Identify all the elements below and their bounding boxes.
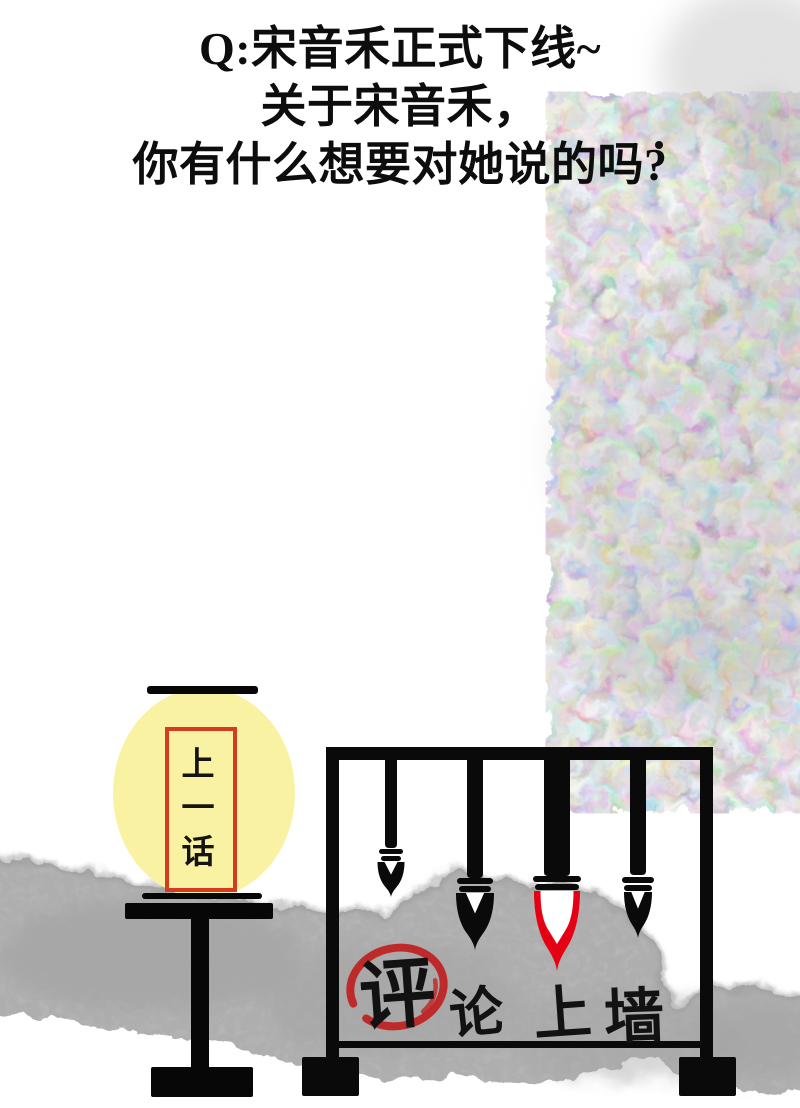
brush-icon-1 <box>378 760 405 897</box>
qa-header: Q:宋音禾正式下线~ 关于宋音禾， 你有什么想要对她说的吗? <box>0 20 800 194</box>
comment-wall-char-qiang: 墙 <box>603 967 666 1056</box>
rack-top-bar <box>326 747 713 760</box>
stand-base <box>151 1067 253 1097</box>
rack-right-post <box>700 747 713 1058</box>
brush-icon-4 <box>622 760 654 938</box>
lantern-top-bar <box>147 686 258 694</box>
brush-icon-2 <box>456 760 494 950</box>
rack-left-post <box>326 747 339 1058</box>
comic-page: { "qa_header": { "line1": "Q:宋音禾正式下线~", … <box>0 0 800 1108</box>
rack-left-foot <box>302 1057 359 1096</box>
prev-chapter-label[interactable]: 上一话 <box>184 737 218 887</box>
rack-right-foot <box>679 1057 736 1096</box>
lantern-bottom-bar <box>142 893 262 899</box>
comment-wall-char-lun: 论 <box>445 966 507 1050</box>
stand-top-bar <box>125 903 273 919</box>
stand-post <box>191 919 209 1069</box>
qa-line-2: 关于宋音禾， <box>0 78 800 136</box>
qa-line-3: 你有什么想要对她说的吗? <box>0 136 800 194</box>
comment-wall-char-shang: 上 <box>530 964 594 1052</box>
qa-line-1: Q:宋音禾正式下线~ <box>0 20 800 78</box>
comment-wall-char-ping: 评 <box>355 930 438 1045</box>
brush-icon-red <box>533 760 581 971</box>
